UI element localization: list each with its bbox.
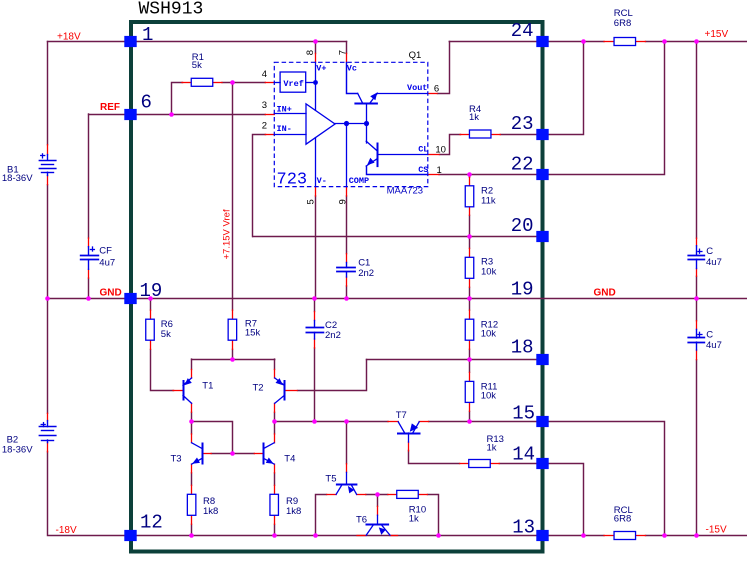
- svg-text:723: 723: [277, 171, 308, 190]
- svg-text:4u7: 4u7: [706, 340, 722, 351]
- svg-text:+18V: +18V: [57, 31, 81, 42]
- svg-text:13: 13: [512, 516, 535, 538]
- svg-text:1k: 1k: [469, 112, 479, 123]
- svg-text:COMP: COMP: [349, 176, 369, 186]
- svg-text:5k: 5k: [192, 60, 202, 71]
- svg-text:Vc: Vc: [347, 64, 357, 74]
- svg-text:C: C: [706, 246, 713, 257]
- svg-text:14: 14: [512, 444, 535, 466]
- svg-text:V+: V+: [316, 64, 326, 74]
- svg-text:15k: 15k: [245, 328, 261, 339]
- svg-text:18-36V: 18-36V: [2, 173, 33, 184]
- svg-text:IN-: IN-: [277, 124, 292, 134]
- svg-text:T7: T7: [396, 410, 407, 421]
- svg-text:10k: 10k: [481, 329, 497, 340]
- svg-text:GND: GND: [100, 287, 122, 298]
- svg-text:6R8: 6R8: [614, 18, 631, 29]
- svg-text:12: 12: [140, 512, 163, 534]
- svg-text:2n2: 2n2: [358, 268, 374, 279]
- svg-text:1k: 1k: [487, 442, 497, 453]
- svg-text:IN+: IN+: [277, 105, 292, 115]
- svg-text:1: 1: [142, 24, 153, 46]
- svg-text:4u7: 4u7: [706, 257, 722, 268]
- svg-text:T3: T3: [171, 454, 182, 465]
- svg-text:10: 10: [435, 145, 446, 156]
- svg-text:MAA723: MAA723: [387, 185, 423, 196]
- svg-text:10k: 10k: [481, 391, 497, 402]
- svg-text:V-: V-: [317, 176, 327, 186]
- svg-text:22: 22: [511, 154, 534, 176]
- svg-text:19: 19: [511, 279, 534, 301]
- svg-text:T2: T2: [253, 383, 264, 394]
- svg-text:24: 24: [511, 20, 534, 42]
- svg-text:CS: CS: [418, 165, 428, 175]
- svg-text:C1: C1: [358, 258, 370, 269]
- svg-text:C: C: [706, 330, 713, 341]
- svg-text:15: 15: [512, 402, 535, 424]
- svg-text:6: 6: [141, 92, 152, 114]
- svg-text:+15V: +15V: [705, 29, 729, 40]
- svg-text:10k: 10k: [481, 266, 497, 277]
- svg-text:4: 4: [262, 69, 267, 80]
- svg-text:-15V: -15V: [706, 524, 727, 535]
- svg-text:1: 1: [437, 165, 442, 176]
- svg-text:Vout: Vout: [407, 83, 427, 93]
- svg-text:T1: T1: [202, 380, 213, 391]
- svg-text:18: 18: [511, 337, 534, 359]
- svg-text:6R8: 6R8: [614, 513, 631, 524]
- svg-text:-18V: -18V: [56, 525, 77, 536]
- svg-text:T6: T6: [356, 515, 367, 526]
- svg-text:3: 3: [262, 100, 267, 111]
- svg-text:7: 7: [337, 50, 348, 55]
- svg-text:4u7: 4u7: [99, 257, 115, 268]
- svg-text:6: 6: [434, 84, 439, 95]
- svg-text:Vref: Vref: [283, 79, 303, 89]
- svg-text:20: 20: [511, 215, 534, 237]
- svg-text:T5: T5: [325, 474, 336, 485]
- svg-text:CL: CL: [418, 145, 428, 155]
- svg-text:1k: 1k: [409, 513, 419, 524]
- svg-text:T4: T4: [284, 454, 295, 465]
- svg-text:REF: REF: [100, 102, 120, 113]
- svg-text:9: 9: [337, 199, 348, 204]
- svg-text:+7.15V Vref: +7.15V Vref: [222, 209, 233, 259]
- svg-text:2: 2: [262, 120, 267, 131]
- svg-text:5: 5: [306, 199, 317, 204]
- svg-text:WSH913: WSH913: [139, 0, 204, 20]
- svg-text:1k8: 1k8: [203, 506, 218, 517]
- svg-text:GND: GND: [594, 288, 616, 299]
- svg-text:CF: CF: [99, 246, 112, 257]
- svg-text:5k: 5k: [161, 329, 171, 340]
- svg-text:2n2: 2n2: [325, 330, 341, 341]
- svg-text:18-36V: 18-36V: [2, 445, 33, 456]
- svg-text:1k8: 1k8: [286, 506, 301, 517]
- svg-text:23: 23: [511, 113, 534, 135]
- svg-text:11k: 11k: [481, 196, 496, 207]
- svg-text:19: 19: [140, 280, 163, 302]
- svg-text:Q1: Q1: [409, 50, 422, 61]
- svg-text:8: 8: [305, 50, 316, 55]
